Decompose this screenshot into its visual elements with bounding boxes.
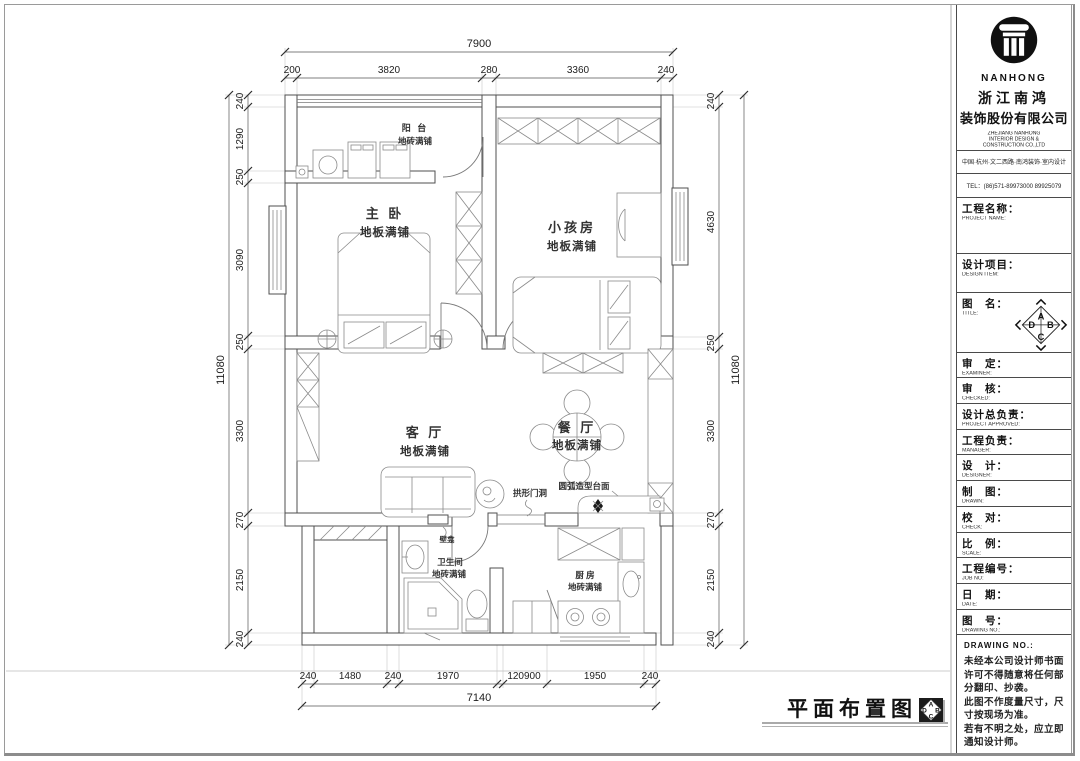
svg-text:A: A: [1038, 312, 1045, 322]
svg-text:1480: 1480: [339, 671, 362, 682]
svg-text:D: D: [1028, 320, 1035, 330]
tall-cabinet: [648, 349, 673, 513]
nanhong-logo-icon: [988, 14, 1040, 66]
svg-text:1290: 1290: [235, 127, 246, 150]
notes-section: DRAWING NO.: 未经本公司设计师书面 许可不得随意将任何部 分翻印、抄…: [957, 634, 1071, 756]
kids-wardrobe: [498, 118, 660, 144]
company-tel: TEL：(86)571-89973000 89925079: [957, 173, 1071, 198]
svg-text:地板满铺: 地板满铺: [552, 438, 602, 452]
abcd-compass-icon: A B C D: [1014, 297, 1068, 351]
master-bay-window: [269, 206, 286, 294]
kids-bed: [513, 277, 661, 353]
svg-text:3820: 3820: [378, 65, 401, 76]
living-room-furniture: [297, 353, 504, 517]
svg-text:C: C: [929, 714, 934, 721]
company-name-line2: 装饰股份有限公司: [957, 108, 1071, 127]
svg-text:270: 270: [235, 511, 246, 528]
company-name-en: ZHEJIANG NANHONG INTERIOR DESIGN & CONST…: [966, 131, 1063, 149]
kids-room-furniture: [498, 118, 661, 353]
svg-text:1950: 1950: [584, 671, 607, 682]
field-checked: 审 核： CHECKED:: [957, 377, 1071, 403]
brand-name: NANHONG: [957, 73, 1071, 84]
label-balcony: 阳 台: [402, 122, 429, 133]
field-design-item: 设计项目： DESIGN ITEM:: [957, 253, 1071, 293]
label-niche: 壁龛: [440, 534, 455, 544]
svg-text:240: 240: [658, 65, 675, 76]
kitchen-furniture: [558, 528, 644, 633]
kitchen-counter: [618, 562, 644, 633]
field-job-no: 工程编号： JOB NO:: [957, 557, 1071, 583]
balcony-cabinet: [348, 142, 376, 178]
field-check: 校 对： CHECK:: [957, 506, 1071, 532]
stove: [558, 601, 620, 633]
company-name-line1: 浙江南鸿: [957, 88, 1071, 108]
svg-text:3360: 3360: [567, 65, 590, 76]
svg-text:3300: 3300: [706, 419, 717, 442]
label-master: 主 卧: [366, 206, 405, 221]
svg-text:3300: 3300: [235, 419, 246, 442]
dim-right-total: 11080: [730, 355, 742, 385]
svg-text:地砖满铺: 地砖满铺: [398, 136, 433, 146]
svg-text:C: C: [1038, 332, 1045, 342]
label-living: 客 厅: [406, 425, 445, 440]
kids-desk: [617, 193, 661, 257]
balcony-furniture: [296, 142, 410, 178]
label-bath: 卫生间: [437, 557, 463, 567]
svg-text:240: 240: [642, 671, 659, 682]
floor-plan-svg: 7900 200 3820 280 3360 240 240 1480 240 …: [0, 0, 958, 761]
company-header: NANHONG 浙江南鸿 装饰股份有限公司 ZHEJIANG NANHONG I…: [957, 4, 1071, 150]
svg-text:200: 200: [284, 65, 301, 76]
label-kids: 小孩房: [548, 220, 596, 235]
dim-top-total: 7900: [467, 38, 491, 50]
field-date: 日 期： DATE:: [957, 583, 1071, 609]
field-drawing-no: 图 号： DRAWING NO.:: [957, 609, 1071, 635]
sofa: [381, 467, 475, 517]
toilet: [467, 590, 487, 618]
dining-chair: [564, 390, 590, 416]
svg-text:270: 270: [706, 511, 717, 528]
field-title: 图 名： TITLE: A B C D: [957, 292, 1071, 351]
dim-left-total: 11080: [215, 355, 227, 385]
svg-text:A: A: [929, 702, 934, 709]
label-curved-counter: 圆弧造型台面: [558, 481, 610, 491]
label-kitchen: 厨 房: [575, 570, 594, 580]
bathroom-furniture: [402, 515, 551, 640]
svg-text:250: 250: [235, 168, 246, 185]
svg-text:3090: 3090: [235, 248, 246, 271]
dim-bottom-total: 7140: [467, 692, 491, 704]
drawing-title: 平面布置图: [787, 697, 917, 721]
svg-text:250: 250: [706, 334, 717, 351]
field-project-name: 工程名称： PROJECT NAME:: [957, 197, 1071, 252]
svg-text:B: B: [935, 707, 940, 714]
wall-niche: [428, 515, 448, 524]
abcd-stamp: A B C D: [918, 697, 946, 725]
company-address: 中国·杭州·文二西路·南鸿装饰·室内设计: [957, 150, 1071, 173]
svg-text:240: 240: [706, 630, 717, 647]
svg-text:240: 240: [300, 671, 317, 682]
field-examiner: 审 定： EXAMINER:: [957, 352, 1071, 378]
svg-text:地板满铺: 地板满铺: [547, 239, 597, 253]
svg-text:D: D: [922, 707, 927, 714]
field-designer: 设 计： DESIGNER:: [957, 454, 1071, 480]
field-project-approved: 设计总负责： PROJECT APPROVED:: [957, 403, 1071, 429]
curved-counter: [578, 496, 660, 513]
field-manager: 工程负责： MANAGER:: [957, 429, 1071, 455]
svg-text:250: 250: [235, 333, 246, 350]
svg-text:4630: 4630: [706, 210, 717, 233]
svg-text:120900: 120900: [507, 671, 541, 682]
meter-box: [650, 498, 664, 511]
field-drawn: 制 图： DRAWN:: [957, 480, 1071, 506]
drawing-sheet: 7900 200 3820 280 3360 240 240 1480 240 …: [0, 0, 1080, 761]
svg-text:地板满铺: 地板满铺: [400, 444, 450, 458]
svg-text:2150: 2150: [706, 568, 717, 591]
svg-text:B: B: [1047, 320, 1054, 330]
label-arch-door: 拱形门洞: [513, 488, 548, 498]
field-scale: 比 例： SCALE:: [957, 532, 1071, 558]
svg-text:240: 240: [706, 92, 717, 109]
shower: [404, 578, 462, 633]
title-block: NANHONG 浙江南鸿 装饰股份有限公司 ZHEJIANG NANHONG I…: [956, 4, 1072, 756]
svg-text:240: 240: [385, 671, 402, 682]
balcony-cabinet: [380, 142, 410, 178]
svg-text:地砖满铺: 地砖满铺: [568, 582, 603, 592]
svg-text:240: 240: [235, 630, 246, 647]
svg-text:地板满铺: 地板满铺: [360, 225, 410, 239]
svg-text:1970: 1970: [437, 671, 460, 682]
label-dining: 餐 厅: [557, 420, 597, 435]
svg-text:240: 240: [235, 92, 246, 109]
notes-header: DRAWING NO.:: [964, 641, 1064, 650]
svg-text:2150: 2150: [235, 568, 246, 591]
svg-text:地砖满铺: 地砖满铺: [432, 569, 467, 579]
svg-text:280: 280: [481, 65, 498, 76]
